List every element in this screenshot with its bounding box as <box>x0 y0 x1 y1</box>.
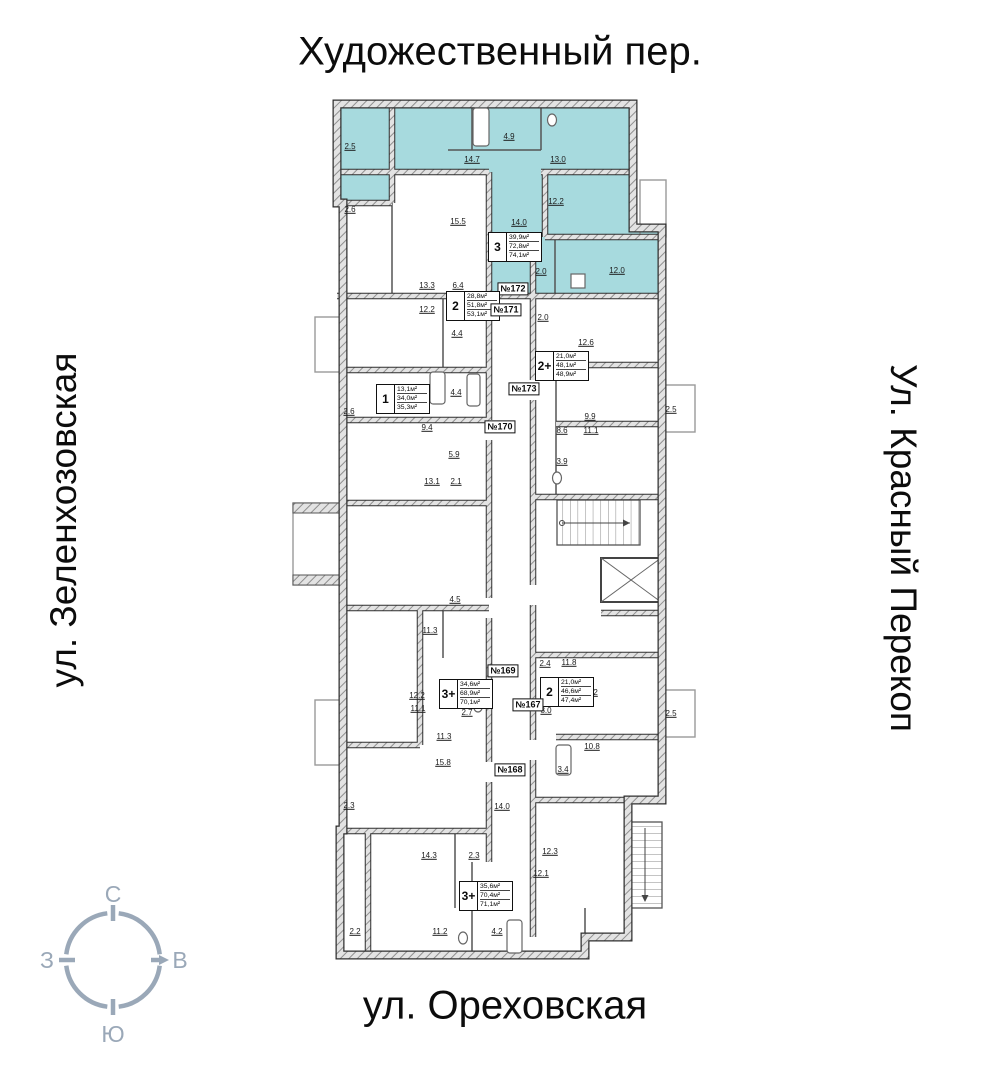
room-dimension-label: 11.2 <box>433 928 448 936</box>
apartment-room-count: 2+ <box>536 352 554 380</box>
room-dimension-label: 2.4 <box>539 660 550 668</box>
apartment-number-tag-167[interactable]: №167 <box>512 698 543 711</box>
apartment-info-173[interactable]: 2+21,0м²48,1м²48,9м² <box>535 351 589 381</box>
room-dimension-label: 3.4 <box>557 766 568 774</box>
room-dimension-label: 9.9 <box>584 413 595 421</box>
room-dimension-label: 14.3 <box>421 852 437 860</box>
apartment-area-value: 35,3м² <box>397 405 427 412</box>
staircase-core <box>557 500 640 545</box>
external-stair <box>628 822 662 908</box>
room-dimension-label: 2.0 <box>535 268 546 276</box>
room-dimension-label: 14.0 <box>494 803 510 811</box>
apartment-info-168[interactable]: 3+35,6м²70,4м²71,1м² <box>459 881 513 911</box>
room-dimension-label: 2.2 <box>349 928 360 936</box>
apartment-number-tag-172[interactable]: №172 <box>497 282 528 295</box>
apartment-number-tag-169[interactable]: №169 <box>487 664 518 677</box>
elevator-shaft <box>601 558 661 602</box>
apartment-area-value: 71,1м² <box>480 902 510 909</box>
room-dimension-label: 4.2 <box>491 928 502 936</box>
apartment-info-170[interactable]: 113,1м²34,0м²35,3м² <box>376 384 430 414</box>
apartment-area-value: 70,4м² <box>480 893 510 901</box>
loggia-walls <box>293 503 343 585</box>
room-dimension-label: 4.5 <box>449 596 460 604</box>
apartment-areas: 13,1м²34,0м²35,3м² <box>395 385 429 413</box>
compass-rose: С Ю З В <box>33 880 193 1050</box>
room-dimension-label: 12.2 <box>419 306 435 314</box>
apartment-areas: 39,9м²72,8м²74,1м² <box>507 233 541 261</box>
compass-north-label: С <box>105 881 122 907</box>
room-dimension-label: 4.4 <box>450 389 461 397</box>
apartment-number-tag-173[interactable]: №173 <box>508 382 539 395</box>
room-dimension-label: 5.9 <box>448 451 459 459</box>
room-dimension-label: 4.9 <box>503 133 514 141</box>
room-dimension-label: 13.1 <box>424 478 440 486</box>
apartment-room-count: 3+ <box>440 680 458 708</box>
room-dimension-label: 2.3 <box>343 802 354 810</box>
room-dimension-label: 2.1 <box>450 478 461 486</box>
apartment-area-value: 35,6м² <box>480 884 510 892</box>
room-dimension-label: 3.9 <box>556 458 567 466</box>
room-dimension-label: 2.6 <box>343 408 354 416</box>
apartment-areas: 35,6м²70,4м²71,1м² <box>478 882 512 910</box>
room-dimension-label: 2.5 <box>344 143 355 151</box>
room-dimension-label: 14.7 <box>464 156 480 164</box>
apartment-info-172[interactable]: 339,9м²72,8м²74,1м² <box>488 232 542 262</box>
apartment-room-count: 1 <box>377 385 395 413</box>
apartment-area-value: 74,1м² <box>509 253 539 260</box>
room-dimension-label: 11.1 <box>411 705 426 713</box>
apartment-areas: 21,0м²46,6м²47,4м² <box>559 678 593 706</box>
room-dimension-label: 2.7 <box>461 709 472 717</box>
apartment-area-value: 13,1м² <box>397 387 427 395</box>
apartment-area-value: 34,0м² <box>397 396 427 404</box>
room-dimension-label: 2.3 <box>468 852 479 860</box>
apartment-info-167[interactable]: 221,0м²46,6м²47,4м² <box>540 677 594 707</box>
room-dimension-label: 13.0 <box>550 156 566 164</box>
floorplan-page: Художественный пер. ул. Зеленхозовская У… <box>0 0 1000 1067</box>
apartment-info-169[interactable]: 3+34,6м²68,9м²70,1м² <box>439 679 493 709</box>
apartment-room-count: 2 <box>541 678 559 706</box>
room-dimension-label: 6.4 <box>452 282 463 290</box>
compass-east-arrow <box>159 955 169 965</box>
room-dimension-label: 11.8 <box>562 659 577 667</box>
apartment-number-tag-171[interactable]: №171 <box>490 303 521 316</box>
apartment-room-count: 3 <box>489 233 507 261</box>
room-dimension-label: 8.6 <box>556 427 567 435</box>
compass-west-label: З <box>40 947 54 973</box>
apartment-area-value: 48,9м² <box>556 372 586 379</box>
compass-east-label: В <box>172 947 187 973</box>
apartment-area-value: 68,9м² <box>460 691 490 699</box>
room-dimension-label: 12.2 <box>548 198 564 206</box>
apartment-area-value: 48,1м² <box>556 363 586 371</box>
apartment-area-value: 46,6м² <box>561 689 591 697</box>
apartment-number-tag-168[interactable]: №168 <box>494 763 525 776</box>
room-dimension-label: 4.4 <box>451 330 462 338</box>
room-dimension-label: 2.6 <box>344 206 355 214</box>
room-dimension-label: 9.4 <box>421 424 432 432</box>
apartment-area-value: 34,6м² <box>460 682 490 690</box>
apartment-area-value: 39,9м² <box>509 235 539 243</box>
room-dimension-label: 2.5 <box>665 710 676 718</box>
room-dimension-label: 10.8 <box>584 743 600 751</box>
room-dimension-label: 11.1 <box>584 427 599 435</box>
apartment-areas: 21,0м²48,1м²48,9м² <box>554 352 588 380</box>
room-dimension-label: 12.3 <box>542 848 558 856</box>
apartment-area-value: 28,8м² <box>467 294 497 302</box>
room-dimension-label: 2.5 <box>665 406 676 414</box>
apartment-area-value: 21,0м² <box>561 680 591 688</box>
room-dimension-label: 11.3 <box>437 733 452 741</box>
room-dimension-label: 2.0 <box>537 314 548 322</box>
room-dimension-label: 12.2 <box>409 692 425 700</box>
apartment-room-count: 2 <box>447 292 465 320</box>
apartment-area-value: 21,0м² <box>556 354 586 362</box>
room-dimension-label: 11.3 <box>423 627 438 635</box>
room-dimension-label: 13.3 <box>419 282 435 290</box>
room-dimension-label: 12.1 <box>533 870 549 878</box>
apartment-area-value: 70,1м² <box>460 700 490 707</box>
room-dimension-label: 12.6 <box>578 339 594 347</box>
room-dimension-label: 12.0 <box>609 267 625 275</box>
apartment-area-value: 72,8м² <box>509 244 539 252</box>
room-dimension-label: 14.0 <box>511 219 527 227</box>
room-dimension-label: 15.5 <box>450 218 466 226</box>
room-dimension-label: 15.8 <box>435 759 451 767</box>
apartment-area-value: 47,4м² <box>561 698 591 705</box>
apartment-areas: 34,6м²68,9м²70,1м² <box>458 680 492 708</box>
apartment-room-count: 3+ <box>460 882 478 910</box>
apartment-number-tag-170[interactable]: №170 <box>484 420 515 433</box>
compass-south-label: Ю <box>101 1021 124 1047</box>
